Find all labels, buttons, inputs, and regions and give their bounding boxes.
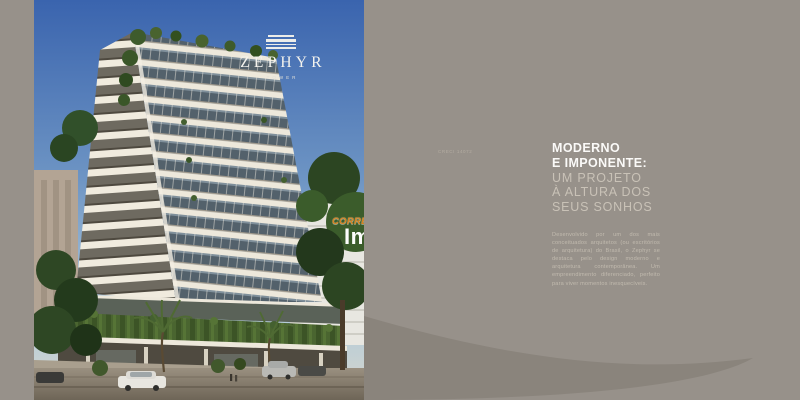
headline-light-line-3: SEUS SONHOS	[552, 200, 653, 215]
zephyr-tower-logo: ZEPHYR TOWER	[235, 35, 327, 80]
creci-number: CRECI 14072	[438, 149, 472, 154]
zephyr-logo-subtitle: TOWER	[235, 75, 327, 80]
info-panel: CRECI 14072 MODERNO E IMPONENTE: UM PROJ…	[364, 0, 800, 400]
headline-bold-line-1: MODERNO	[552, 141, 653, 156]
building-photo: ZEPHYR TOWER	[34, 0, 364, 400]
headline-light-line-1: UM PROJETO	[552, 171, 653, 186]
brochure-page: ZEPHYR TOWER A S CORRETOR DE Imóveis CR	[0, 0, 800, 400]
headline-bold-line-2: E IMPONENTE:	[552, 156, 653, 171]
zephyr-slabs-icon	[266, 35, 296, 49]
zephyr-logo-title: ZEPHYR	[235, 54, 327, 72]
headline-light-line-2: À ALTURA DOS	[552, 185, 653, 200]
headline: MODERNO E IMPONENTE: UM PROJETO À ALTURA…	[552, 141, 653, 215]
body-paragraph: Desenvolvido por um dos mais conceituado…	[552, 231, 660, 288]
